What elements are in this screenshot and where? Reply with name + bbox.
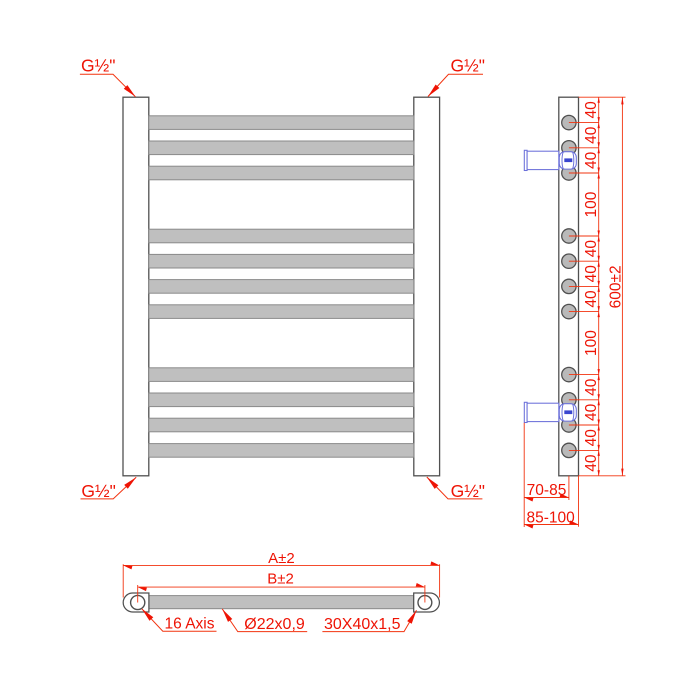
- svg-text:40: 40: [583, 378, 600, 396]
- svg-text:40: 40: [583, 290, 600, 308]
- svg-text:B±2: B±2: [267, 570, 294, 587]
- svg-text:70-85: 70-85: [527, 482, 567, 499]
- svg-text:40: 40: [583, 265, 600, 283]
- svg-text:40: 40: [583, 403, 600, 421]
- svg-text:40: 40: [583, 101, 600, 119]
- svg-text:40: 40: [583, 126, 600, 144]
- svg-text:100: 100: [583, 330, 600, 356]
- svg-text:Ø22x0,9: Ø22x0,9: [244, 616, 305, 633]
- svg-text:G½": G½": [451, 481, 485, 501]
- svg-text:100: 100: [583, 191, 600, 217]
- svg-text:16 Axis: 16 Axis: [165, 616, 215, 633]
- svg-text:40: 40: [583, 429, 600, 447]
- svg-text:G½": G½": [81, 56, 115, 76]
- svg-text:40: 40: [583, 240, 600, 258]
- svg-text:40: 40: [583, 454, 600, 472]
- svg-text:G½": G½": [81, 481, 115, 501]
- svg-text:A±2: A±2: [268, 550, 295, 567]
- svg-text:85-100: 85-100: [526, 509, 575, 526]
- svg-text:G½": G½": [451, 56, 485, 76]
- svg-text:40: 40: [583, 151, 600, 169]
- svg-text:600±2: 600±2: [607, 265, 624, 308]
- svg-text:30X40x1,5: 30X40x1,5: [324, 616, 401, 633]
